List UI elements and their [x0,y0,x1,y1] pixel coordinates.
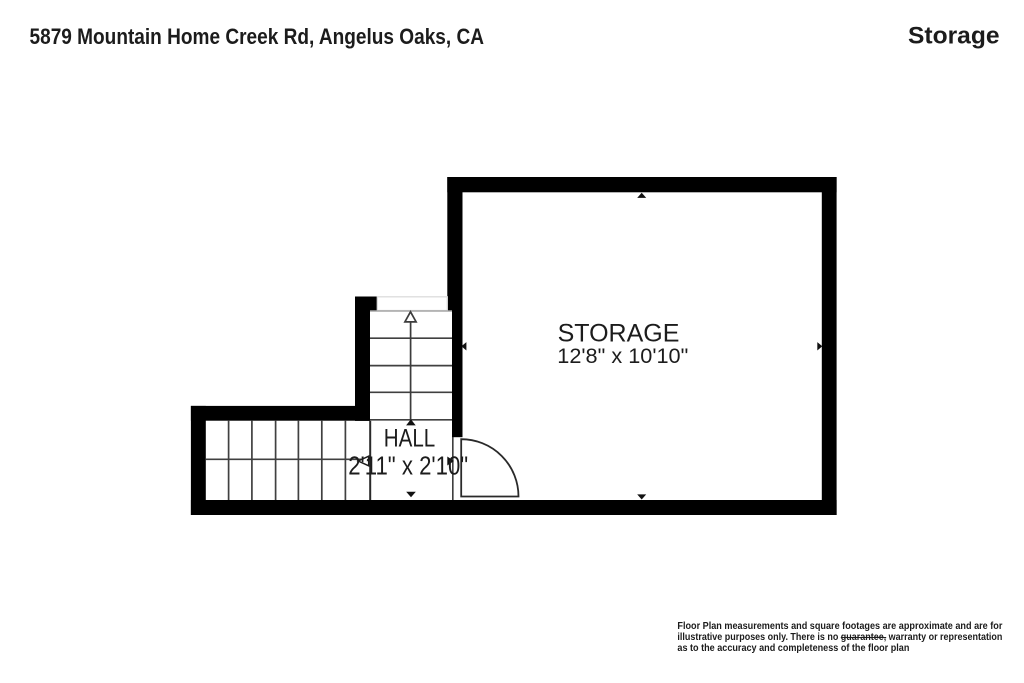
svg-text:Storage: Storage [908,23,1000,50]
svg-text:as to the accuracy and complet: as to the accuracy and completeness of t… [677,643,909,654]
svg-text:STORAGE: STORAGE [558,320,680,348]
svg-text:2'11" x 2'10": 2'11" x 2'10" [348,453,468,481]
svg-text:Floor Plan measurements and sq: Floor Plan measurements and square foota… [677,621,1002,632]
svg-text:illustrative purposes only. Th: illustrative purposes only. There is no … [677,632,1002,643]
svg-text:5879 Mountain Home Creek Rd, A: 5879 Mountain Home Creek Rd, Angelus Oak… [30,24,484,49]
svg-text:12'8" x 10'10": 12'8" x 10'10" [557,345,688,368]
svg-text:HALL: HALL [384,424,436,452]
